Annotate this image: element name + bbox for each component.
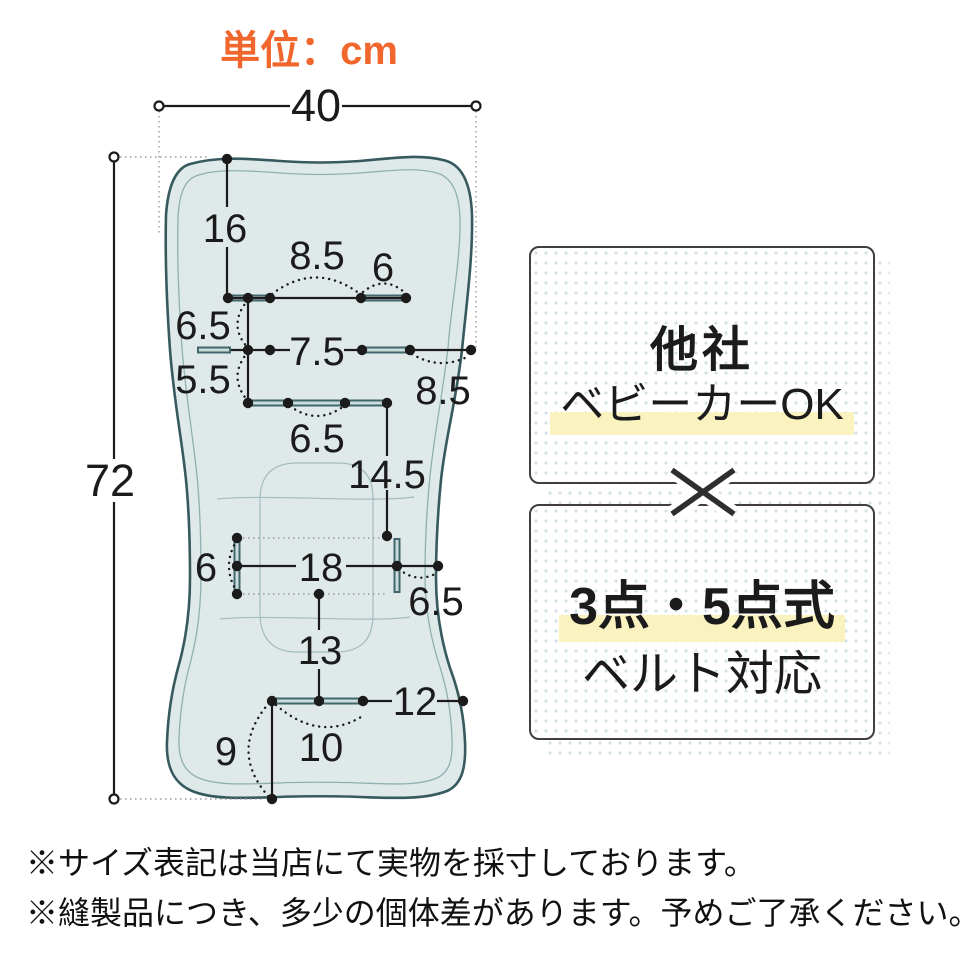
dim-row3-seat: 14.5 — [348, 453, 426, 497]
cross-multiply-icon — [666, 460, 740, 524]
unit-label: 単位：cm — [220, 29, 398, 73]
info-box-bottom-subtitle: ベルト対応 — [531, 634, 873, 704]
size-infographic: 40 72 16 8.5 6 6.5 7.5 5.5 8.5 6.5 14.5 … — [0, 0, 980, 980]
info-box-other-strollers: 他社 ベビーカーOK — [529, 246, 875, 484]
dim-row1-row2: 6.5 — [175, 304, 231, 348]
dim-height-total: 72 — [85, 455, 135, 506]
dim-row2-gap: 7.5 — [289, 330, 345, 374]
dim-seat-bottom: 13 — [298, 629, 343, 673]
dim-row2-edge: 8.5 — [415, 369, 471, 413]
dim-bottom-height: 9 — [215, 730, 237, 774]
dim-bottom-gap: 10 — [299, 726, 344, 770]
dim-seat-slot-height: 6 — [195, 546, 217, 590]
info-box-belt-support: 3点・5点式 ベルト対応 — [529, 504, 875, 740]
dim-row2-row3: 5.5 — [175, 358, 231, 402]
info-box-bottom-title: 3点・5点式 — [531, 564, 873, 639]
footnote-2: ※縫製品につき、多少の個体差があります。予めご了承ください。 — [26, 888, 966, 938]
dim-row1-right-slot: 6 — [372, 246, 394, 290]
footnotes: ※サイズ表記は当店にて実物を採寸しております。 ※縫製品につき、多少の個体差があ… — [26, 838, 966, 938]
dim-bottom-edge: 12 — [393, 680, 438, 724]
dim-seat-gap: 18 — [299, 546, 344, 590]
dim-seat-edge: 6.5 — [408, 580, 464, 624]
dim-width-top: 40 — [291, 80, 341, 131]
footnote-1: ※サイズ表記は当店にて実物を採寸しております。 — [26, 838, 966, 888]
dim-row1-gap: 8.5 — [289, 234, 345, 278]
info-box-top-subtitle: ベビーカーOK — [531, 368, 873, 432]
dim-row3-gap: 6.5 — [289, 417, 345, 461]
dim-top-to-row1: 16 — [203, 207, 248, 251]
